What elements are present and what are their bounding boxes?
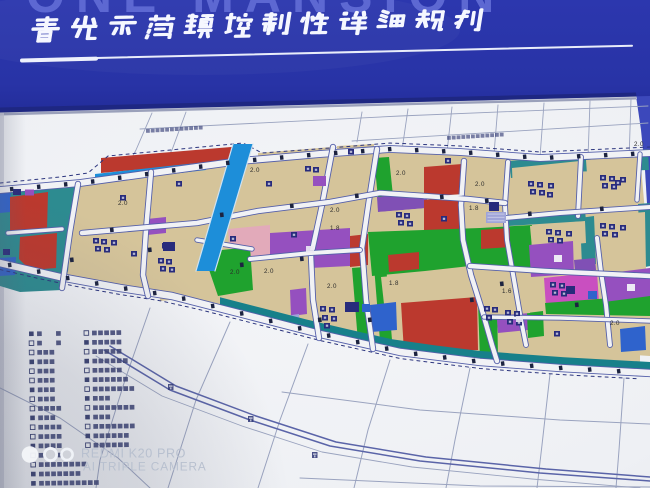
svg-text:2.0: 2.0 — [327, 283, 337, 290]
svg-text:1.6: 1.6 — [502, 288, 512, 295]
svg-text:2.0: 2.0 — [118, 200, 128, 207]
svg-text:2.0: 2.0 — [634, 141, 644, 148]
svg-text:1.8: 1.8 — [469, 205, 479, 212]
svg-text:1.8: 1.8 — [389, 280, 399, 287]
svg-text:2.0: 2.0 — [330, 207, 340, 214]
svg-text:AI TRIPLE CAMERA: AI TRIPLE CAMERA — [83, 460, 207, 474]
svg-text:2.0: 2.0 — [475, 181, 485, 188]
svg-text:2.0: 2.0 — [396, 170, 406, 177]
svg-text:REDMI K20 PRO: REDMI K20 PRO — [81, 447, 186, 461]
svg-text:2.0: 2.0 — [250, 167, 260, 174]
svg-text:1.8: 1.8 — [330, 225, 340, 232]
svg-text:2.0: 2.0 — [230, 269, 240, 276]
svg-text:2.0: 2.0 — [610, 320, 620, 327]
svg-text:2.0: 2.0 — [264, 268, 274, 275]
